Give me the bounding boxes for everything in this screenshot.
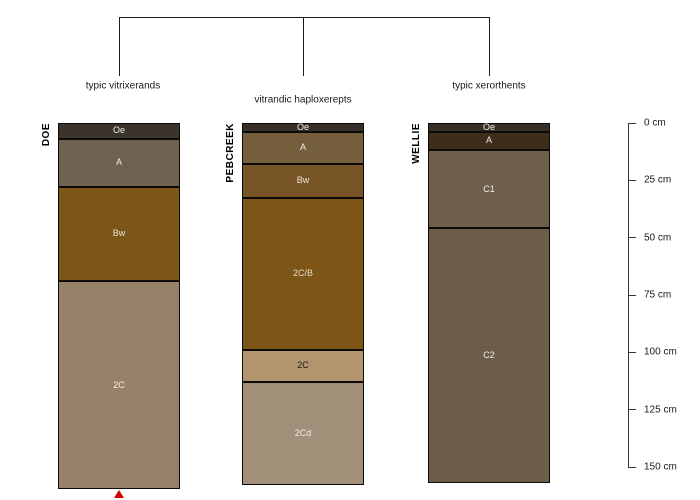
depth-axis-tick [628,467,636,468]
dendrogram-crossbar [119,17,490,18]
depth-axis-tick [628,237,636,238]
horizon-rect: C2 [428,228,550,483]
horizon-rect: 2C/B [242,198,364,349]
horizon-rect: 2C [58,281,180,490]
horizon-label: 2C/B [293,269,313,278]
depth-axis-tick-label: 0 cm [644,118,666,129]
depth-axis-tick [628,123,636,124]
horizon-label: Oe [297,123,309,132]
depth-axis-tick [628,352,636,353]
depth-axis-tick-label: 125 cm [644,404,677,415]
horizon-label: C2 [483,351,495,360]
horizon-label: Bw [297,176,310,185]
horizon-label: A [300,143,306,152]
horizon-rect: Bw [242,164,364,198]
profile-name-label: WELLIE [411,123,422,164]
depth-axis-tick-label: 25 cm [644,175,671,186]
depth-axis-tick-label: 50 cm [644,232,671,243]
depth-axis-tick-label: 75 cm [644,290,671,301]
depth-axis-tick [628,409,636,410]
horizon-rect: Oe [242,123,364,132]
dendrogram-leaf-line [489,17,490,76]
horizon-label: 2C [297,361,309,370]
profile-name-label: PEBCREEK [225,123,236,183]
depth-axis-tick [628,180,636,181]
horizon-rect: 2Cd [242,382,364,485]
taxon-label: vitrandic haploxerepts [254,95,351,106]
horizon-label: Oe [113,126,125,135]
horizon-label: A [116,158,122,167]
horizon-rect: A [428,132,550,150]
horizon-label: 2C [113,381,125,390]
dendrogram-leaf-line [119,17,120,76]
profile-bottom-marker-icon [114,490,124,498]
horizon-label: C1 [483,185,495,194]
soil-profile-figure: typic vitrixerandsvitrandic haploxerepts… [0,0,700,500]
horizon-rect: C1 [428,150,550,228]
depth-axis-tick [628,295,636,296]
dendrogram-leaf-line [303,17,304,76]
horizon-label: Oe [483,123,495,132]
horizon-label: A [486,136,492,145]
depth-axis-tick-label: 150 cm [644,462,677,473]
taxon-label: typic vitrixerands [86,81,160,92]
depth-axis-tick-label: 100 cm [644,347,677,358]
horizon-rect: Bw [58,187,180,281]
horizon-rect: A [242,132,364,164]
horizon-label: Bw [113,229,126,238]
horizon-label: 2Cd [295,429,312,438]
horizon-rect: Oe [428,123,550,132]
horizon-rect: Oe [58,123,180,139]
profile-name-label: DOE [41,123,52,146]
horizon-rect: A [58,139,180,187]
taxon-label: typic xerorthents [452,81,525,92]
horizon-rect: 2C [242,350,364,382]
